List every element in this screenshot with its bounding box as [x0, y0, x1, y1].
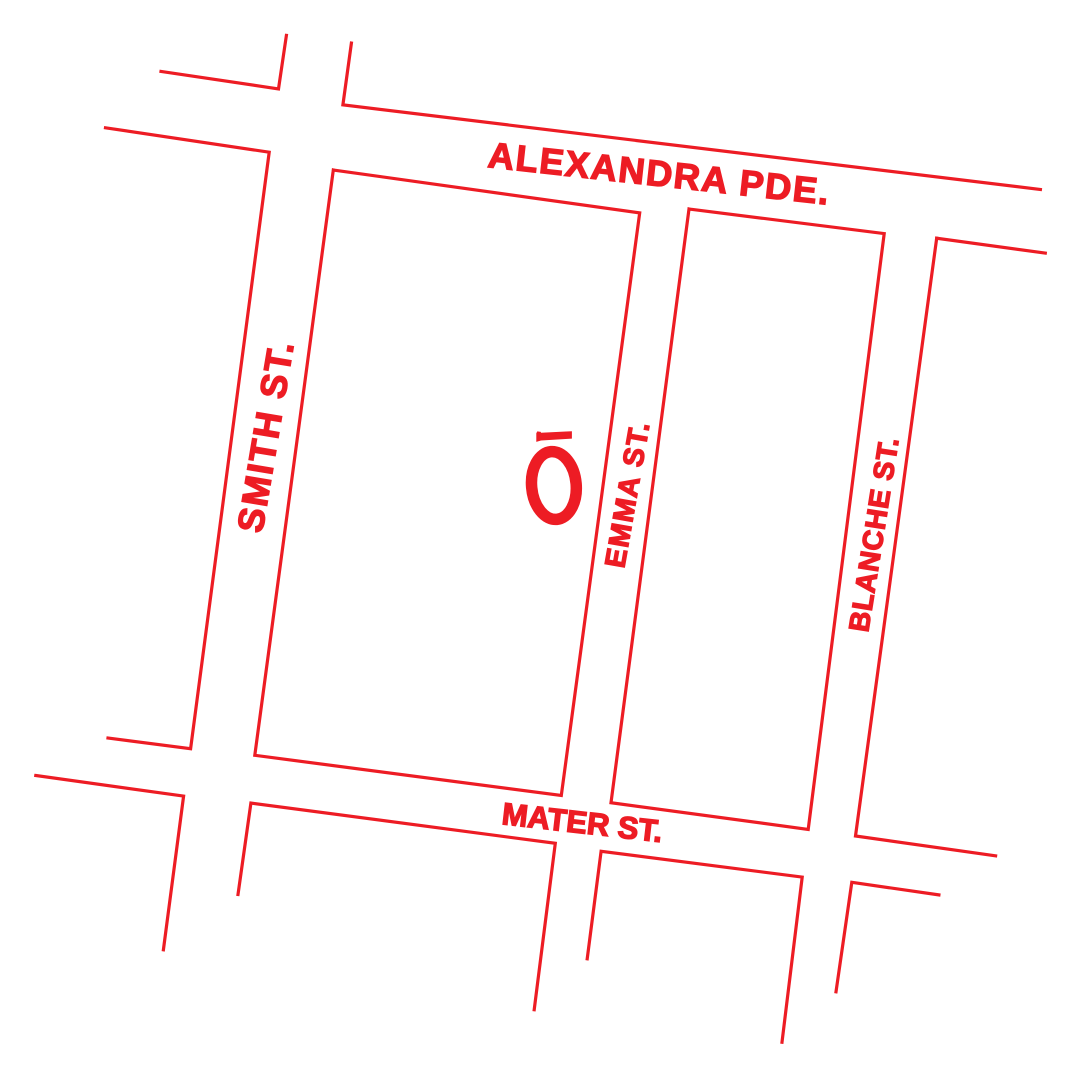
- svg-text:MATER ST.: MATER ST.: [500, 796, 664, 849]
- svg-text:ALEXANDRA PDE.: ALEXANDRA PDE.: [486, 134, 833, 213]
